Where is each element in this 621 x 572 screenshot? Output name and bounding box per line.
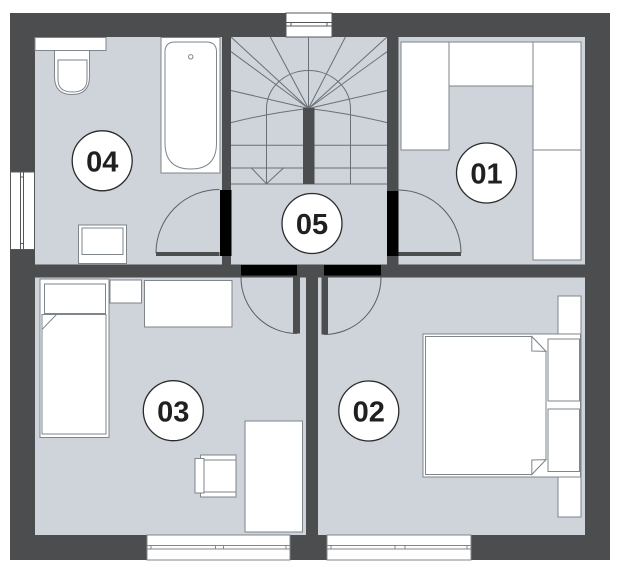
svg-text:03: 03 [157,396,189,428]
svg-text:01: 01 [470,159,502,191]
svg-text:05: 05 [296,209,328,241]
svg-text:04: 04 [86,146,118,178]
svg-text:02: 02 [353,397,385,429]
